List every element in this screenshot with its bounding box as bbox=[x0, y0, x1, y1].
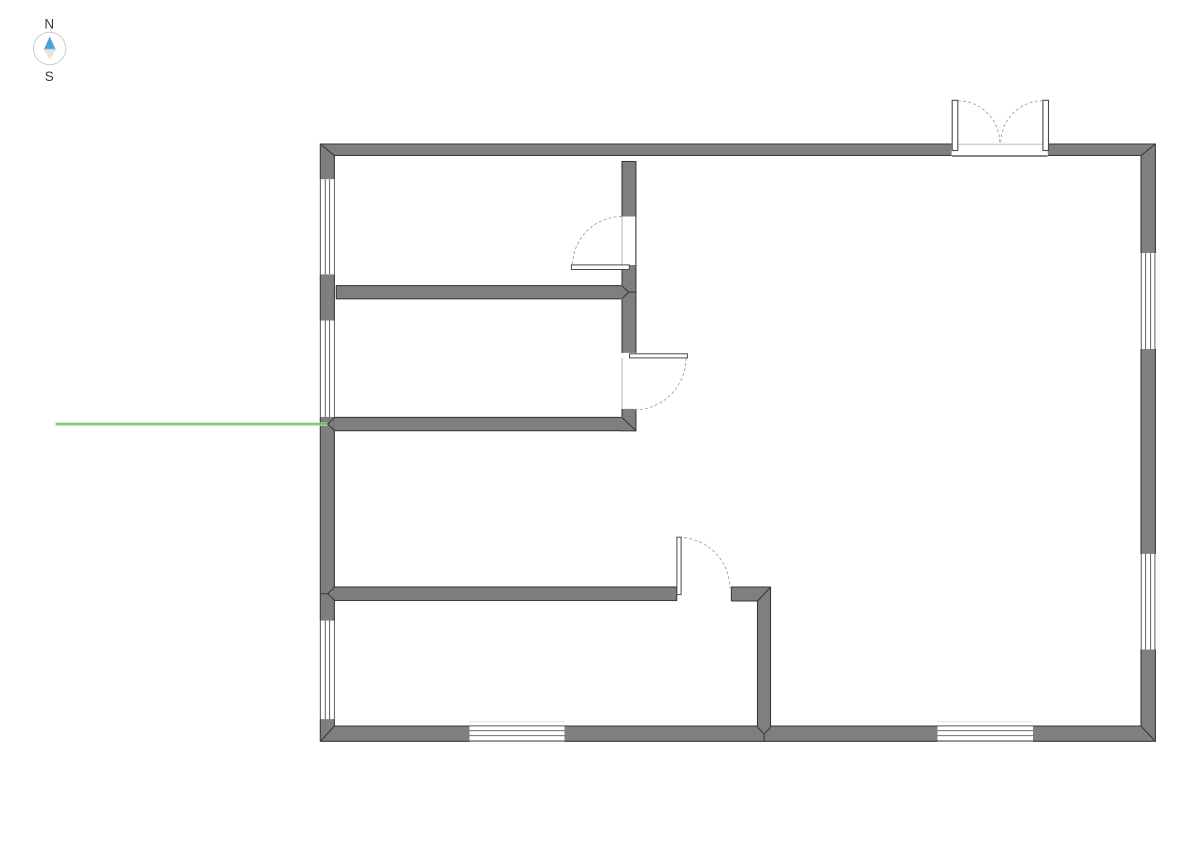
svg-text:S: S bbox=[45, 69, 54, 84]
svg-text:N: N bbox=[44, 17, 54, 32]
